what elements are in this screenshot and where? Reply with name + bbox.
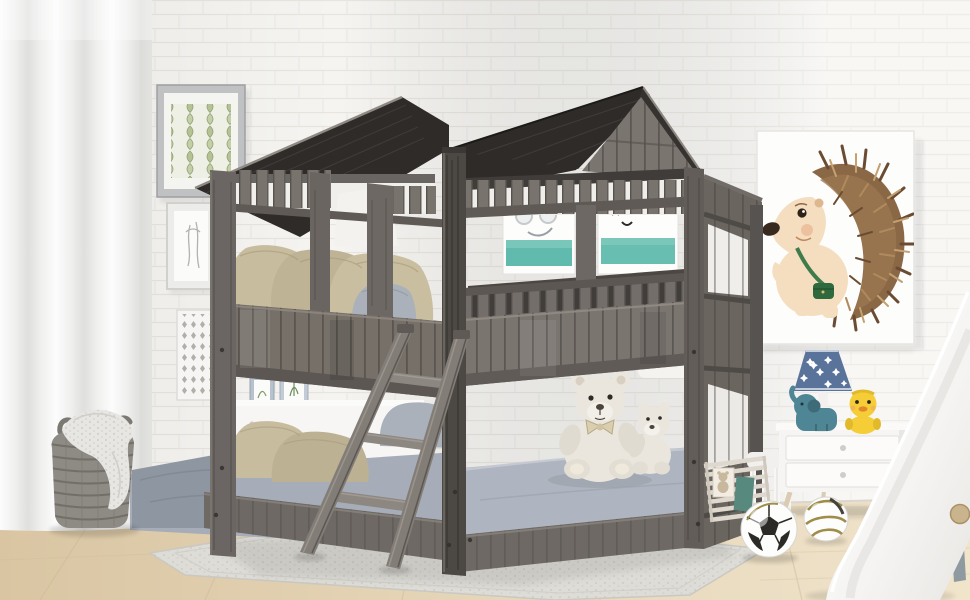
teal-card: [734, 476, 755, 511]
duck-beak: [859, 406, 868, 411]
soccer-ball-black-white: [741, 501, 797, 557]
hedgehog-ear: [815, 199, 824, 208]
product-photo: [0, 0, 970, 600]
drawer-knob: [840, 472, 846, 478]
lattice-panel: [177, 310, 214, 400]
elephant-ear: [808, 400, 821, 413]
window-divider-stud: [576, 205, 596, 292]
bear-card: [713, 468, 734, 497]
slide-wood-button: [951, 505, 970, 524]
room-scene: [0, 0, 970, 600]
drawer-knob: [840, 445, 846, 451]
hedgehog-eye: [797, 208, 806, 217]
hedgehog-cheek: [801, 224, 813, 236]
hedgehog-poster: [757, 131, 923, 352]
stud: [367, 183, 393, 318]
front-right-post: [684, 167, 704, 549]
soccer-ball-gold: [804, 497, 848, 541]
stud: [310, 172, 330, 314]
